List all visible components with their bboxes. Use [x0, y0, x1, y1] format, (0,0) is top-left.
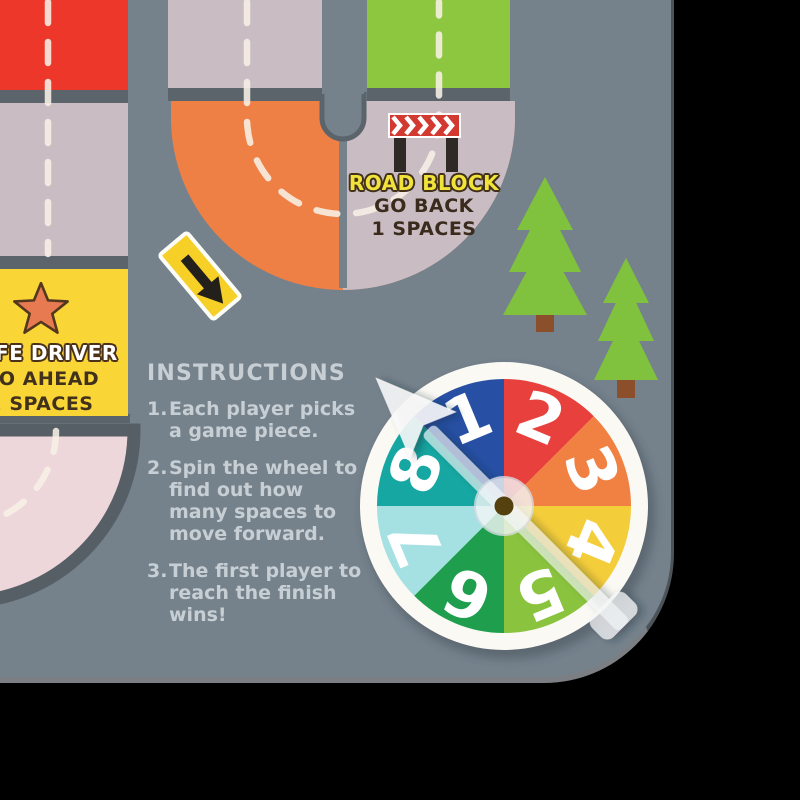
instruction-text: The first player to reach the finish win…: [169, 560, 361, 626]
road-gap: [0, 256, 128, 269]
median-strip: [322, 0, 364, 94]
roadblock-title: ROAD BLOCK: [344, 172, 504, 194]
instruction-number: 1.: [147, 398, 169, 442]
roadblock-amount: 1 SPACES: [344, 219, 504, 240]
spinner-wheel[interactable]: 1 2 3 4 5 6 7 8: [352, 354, 655, 659]
safe-driver-action: GO AHEAD: [0, 368, 99, 390]
road-space-red: [0, 0, 128, 90]
instruction-text: Each player picks a game piece.: [169, 398, 355, 442]
roadblock-sign: ROAD BLOCK GO BACK 1 SPACES: [344, 172, 504, 240]
star-icon: [13, 282, 69, 336]
safe-driver-title: SAFE DRIVER: [0, 341, 118, 365]
roadblock-action: GO BACK: [344, 196, 504, 217]
safe-driver-amount: 2 SPACES: [0, 393, 94, 415]
safe-driver-card: SAFE DRIVER GO AHEAD 2 SPACES: [0, 269, 128, 416]
instruction-item: 3. The first player to reach the finish …: [147, 560, 387, 626]
median-tip: [322, 92, 364, 139]
spinner-hub: [475, 477, 533, 535]
instruction-number: 3.: [147, 560, 169, 626]
pine-tree-small: [594, 258, 658, 398]
photo-canvas: 1 2 3 4 5 6 7 8 ROAD BLOCK GO BACK 1: [0, 0, 800, 800]
road-curve-pink: [0, 430, 134, 602]
pine-tree-large: [503, 177, 587, 332]
instruction-text: Spin the wheel to find out how many spac…: [169, 457, 357, 545]
road-space-mauve: [0, 103, 128, 256]
instruction-item: 1. Each player picks a game piece.: [147, 398, 387, 442]
instruction-number: 2.: [147, 457, 169, 545]
instructions-panel: INSTRUCTIONS 1. Each player picks a game…: [147, 363, 387, 641]
instruction-item: 2. Spin the wheel to find out how many s…: [147, 457, 387, 545]
road-gap: [0, 90, 128, 103]
instructions-heading: INSTRUCTIONS: [147, 363, 387, 385]
